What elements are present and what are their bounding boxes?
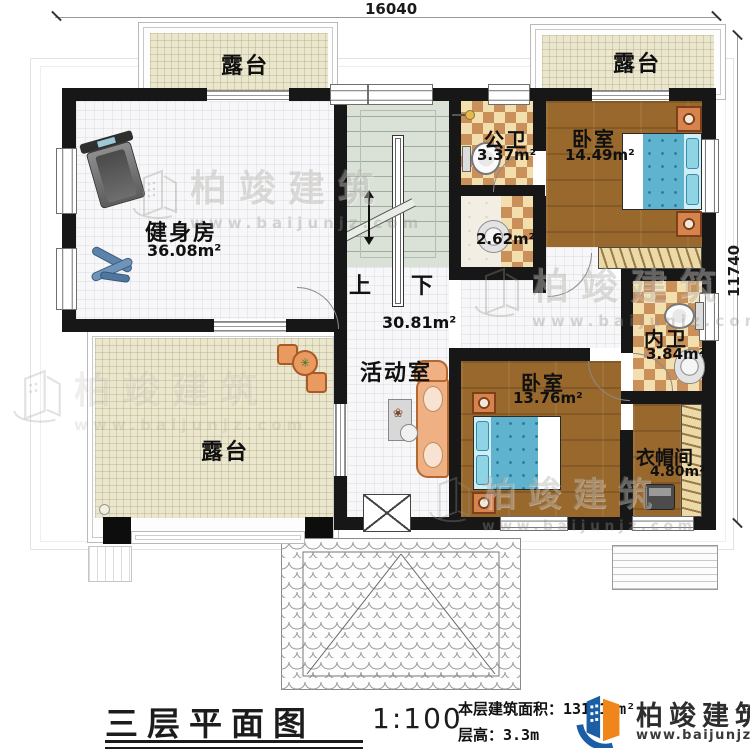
gym-area: 36.08m² xyxy=(147,241,221,260)
ensuite-area: 3.84m² xyxy=(646,345,705,363)
nightstand xyxy=(472,392,496,414)
ceiling-lamp xyxy=(465,110,475,120)
stair-arrow-head xyxy=(364,237,374,245)
wall-segment xyxy=(566,517,634,530)
sliding-door xyxy=(207,90,289,100)
window xyxy=(56,248,77,310)
dim-tick xyxy=(711,11,722,22)
window xyxy=(699,139,719,213)
roof-right-wing xyxy=(612,545,718,590)
wall-segment xyxy=(702,101,716,143)
toilet-tank xyxy=(695,302,704,330)
terrace-table: ✳ xyxy=(292,350,318,376)
wall-segment xyxy=(533,101,546,151)
wall-segment xyxy=(449,348,590,361)
window xyxy=(500,516,568,531)
bed-pillows xyxy=(474,417,491,489)
cloakroom-area: 4.80m² xyxy=(650,464,705,480)
stairs-down-label: 下 xyxy=(411,268,433,300)
stair-arrow-head xyxy=(364,190,374,198)
window xyxy=(368,84,433,105)
terrace-top-left-label: 露台 xyxy=(221,48,269,80)
railing-strip xyxy=(131,531,305,544)
bed-sheet xyxy=(538,417,560,489)
window xyxy=(488,84,530,105)
lamp-stem xyxy=(452,114,465,116)
brand-logo-icon xyxy=(574,690,632,748)
dim-width: 16040 xyxy=(365,0,417,18)
activity-label: 活动室 xyxy=(360,355,432,387)
sliding-door xyxy=(592,90,669,100)
terrace-bottom-label: 露台 xyxy=(201,434,249,466)
bed xyxy=(622,133,702,210)
plan-title: 三层平面图 xyxy=(105,697,315,745)
wall-segment xyxy=(449,361,461,530)
plant-icon: ❀ xyxy=(393,406,407,420)
bed-mattress xyxy=(643,134,684,209)
wall-segment xyxy=(692,517,716,530)
toilet-tank xyxy=(462,146,471,172)
nightstand xyxy=(676,106,702,132)
wall-segment xyxy=(334,101,347,332)
nightstand xyxy=(472,492,496,514)
bed-mattress xyxy=(491,417,538,489)
dumbbells-icon xyxy=(88,243,138,289)
shaft-box xyxy=(363,494,411,532)
closet-hanger-rail xyxy=(598,247,702,269)
wall-segment xyxy=(62,88,207,101)
sliding-door xyxy=(214,321,286,331)
wall-segment xyxy=(620,430,633,517)
stairs-up-label: 上 xyxy=(349,268,371,300)
wall-segment xyxy=(62,319,214,332)
window xyxy=(56,148,77,214)
stair-rail xyxy=(392,135,404,307)
wall-segment xyxy=(448,517,502,530)
bed-pillows xyxy=(684,134,701,209)
wall-segment xyxy=(621,269,633,353)
title-underline xyxy=(105,740,363,743)
terrace-drain xyxy=(99,504,110,515)
wall-segment xyxy=(702,213,716,297)
wall-segment xyxy=(449,267,545,280)
bedroom2-area: 13.76m² xyxy=(513,389,583,407)
plan-scale: 1:100 xyxy=(372,702,463,735)
window xyxy=(632,516,694,531)
brand-website: www.baijunjz.com xyxy=(636,728,750,743)
nightstand xyxy=(676,211,702,237)
roof-tiles xyxy=(281,538,521,690)
public-bath-area: 3.37m² xyxy=(477,146,536,164)
bed xyxy=(473,416,561,490)
sofa-cushion xyxy=(423,386,443,412)
coffee-table xyxy=(400,424,418,442)
terrace-pillar xyxy=(103,517,131,544)
title-underline-2 xyxy=(105,747,363,749)
window xyxy=(330,84,368,105)
wall-segment xyxy=(669,88,716,101)
floor-height-text: 层高：3.3m xyxy=(458,724,539,745)
activity-area: 30.81m² xyxy=(382,313,456,332)
terrace-top-right-label: 露台 xyxy=(613,46,661,78)
stair-direction-arrow xyxy=(368,193,370,239)
wall-segment xyxy=(334,332,347,404)
floor-plan-canvas: 16040 11740 露台 露台 露台 ✳ 上 下 xyxy=(0,0,750,753)
sofa-cushion xyxy=(423,442,443,468)
dim-tick xyxy=(51,11,62,22)
wash-room-area: 2.62m² xyxy=(476,230,535,248)
sliding-door xyxy=(335,404,346,476)
roof-left-stub xyxy=(88,546,132,582)
bedroom1-area: 14.49m² xyxy=(565,146,635,164)
dresser-top xyxy=(649,488,671,496)
dim-height: 11740 xyxy=(725,245,743,297)
